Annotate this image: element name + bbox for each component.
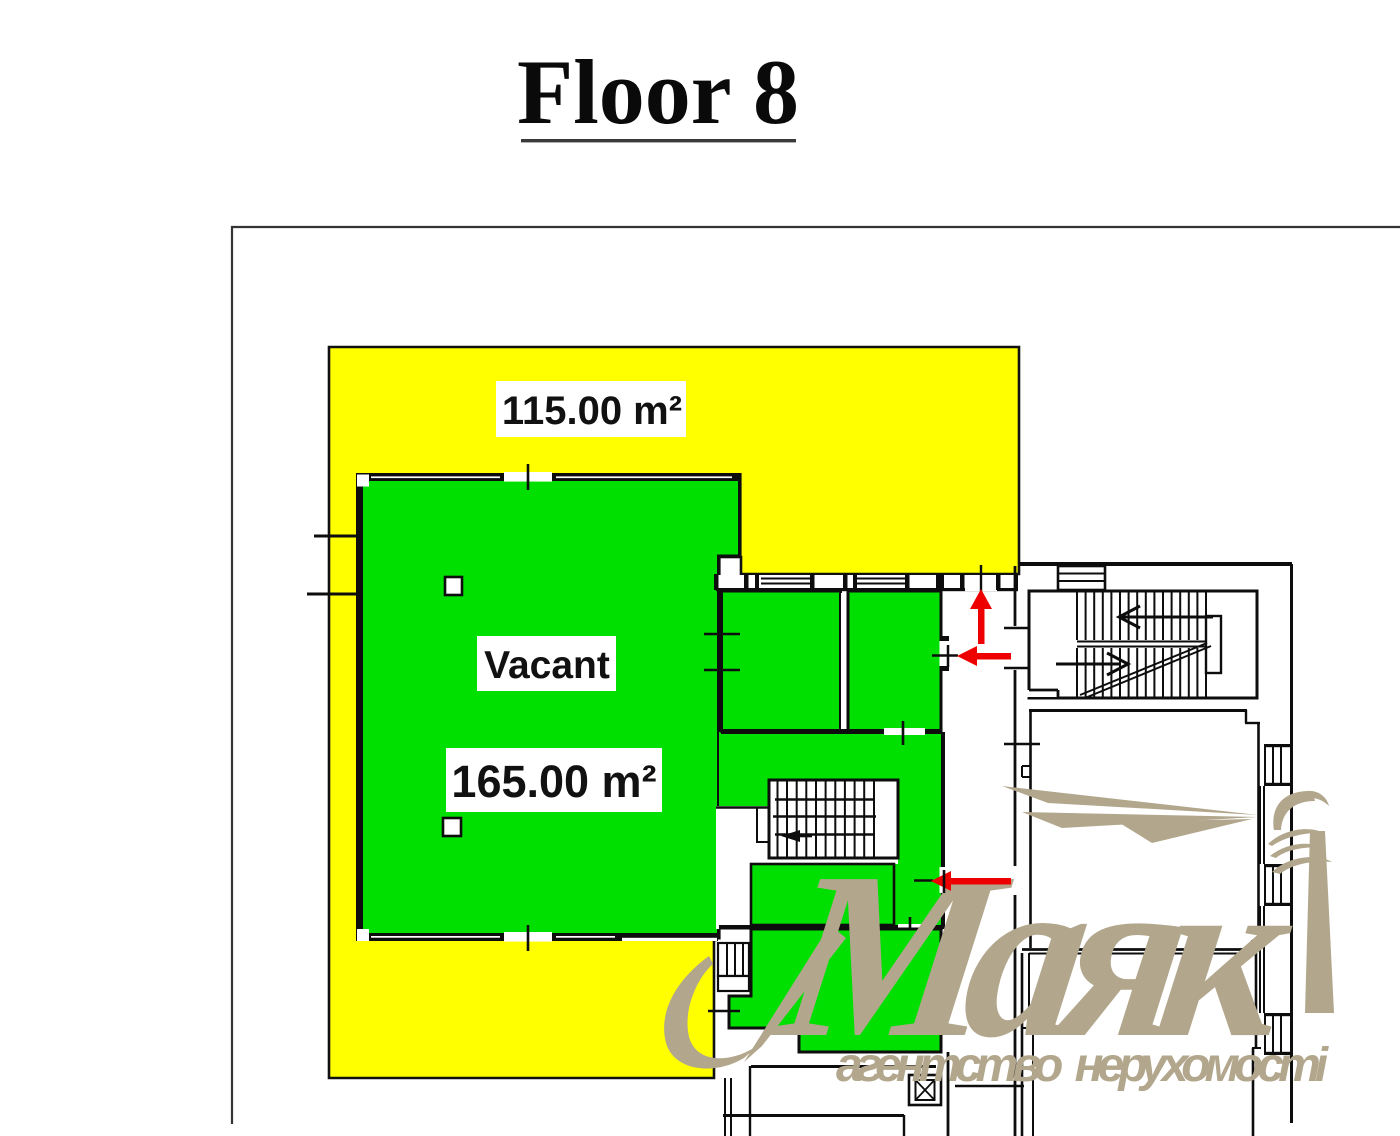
svg-text:Vacant: Vacant [484, 644, 610, 687]
svg-text:165.00 m²: 165.00 m² [451, 756, 656, 807]
svg-text:115.00 m²: 115.00 m² [502, 389, 682, 433]
svg-text:Floor 8: Floor 8 [517, 41, 799, 143]
svg-text:агентство нерухомості: агентство нерухомості [836, 1039, 1330, 1092]
